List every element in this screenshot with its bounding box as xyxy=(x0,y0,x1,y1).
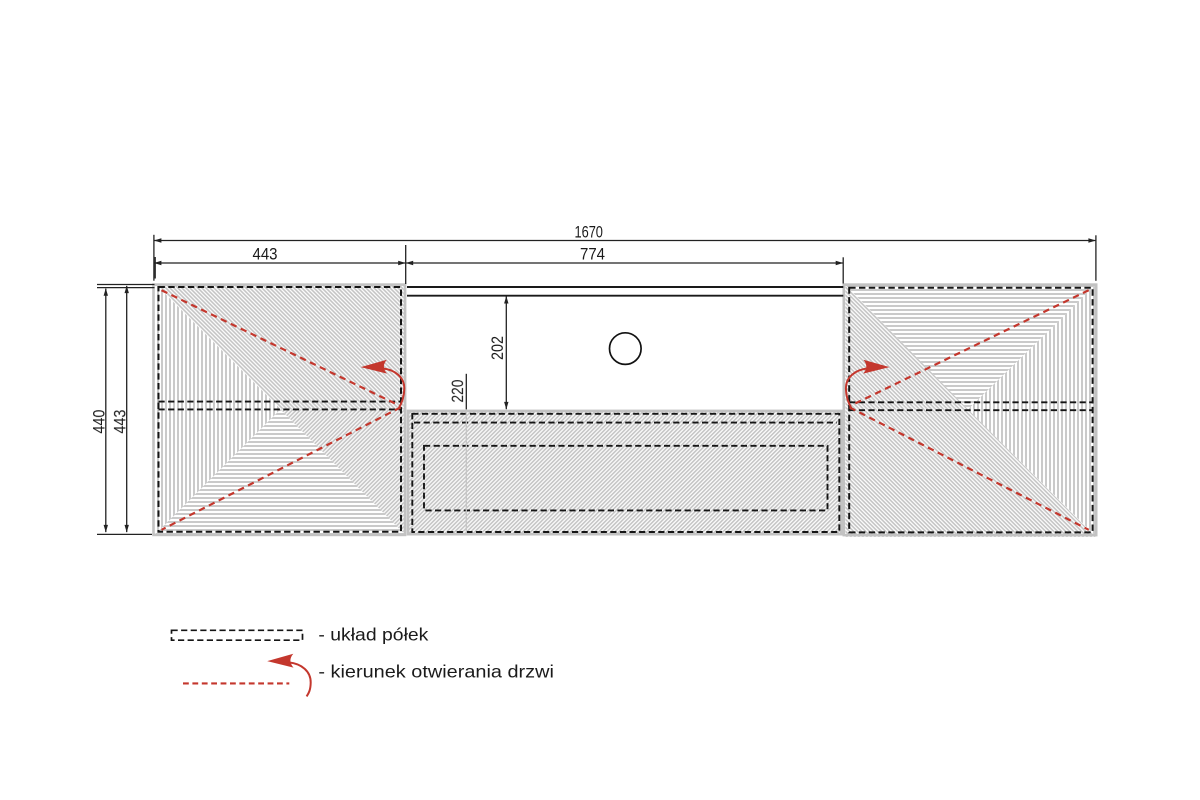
svg-text:443: 443 xyxy=(111,410,129,434)
svg-text:- układ półek: - układ półek xyxy=(318,625,428,645)
svg-text:220: 220 xyxy=(449,380,467,403)
svg-text:443: 443 xyxy=(253,246,278,264)
svg-text:440: 440 xyxy=(91,410,109,434)
svg-text:1670: 1670 xyxy=(574,223,603,241)
svg-text:774: 774 xyxy=(580,246,605,264)
svg-text:202: 202 xyxy=(489,336,507,360)
svg-text:- kierunek otwierania drzwi: - kierunek otwierania drzwi xyxy=(318,662,554,682)
